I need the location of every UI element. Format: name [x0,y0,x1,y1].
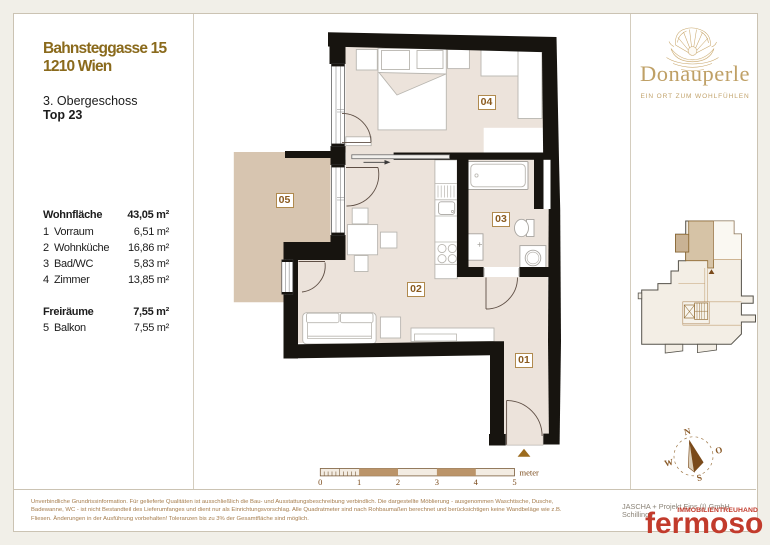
svg-text:2: 2 [396,477,400,487]
svg-text:4: 4 [474,477,479,487]
svg-text:5: 5 [512,477,516,487]
svg-text:N: N [683,426,692,437]
svg-text:W: W [663,457,674,469]
svg-text:S: S [696,472,703,483]
svg-text:0: 0 [318,477,322,487]
svg-text:O: O [714,445,723,456]
svg-text:3: 3 [435,477,439,487]
svg-text:meter: meter [520,468,540,478]
svg-text:1: 1 [357,477,361,487]
